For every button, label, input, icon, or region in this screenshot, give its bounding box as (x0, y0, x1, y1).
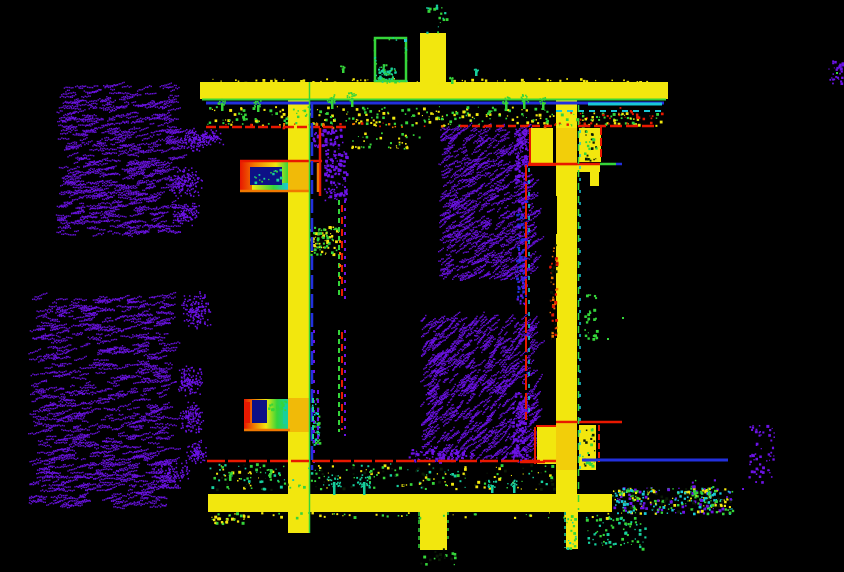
lidar-pointcloud-map-canvas (0, 0, 844, 572)
map-viewport (0, 0, 844, 572)
